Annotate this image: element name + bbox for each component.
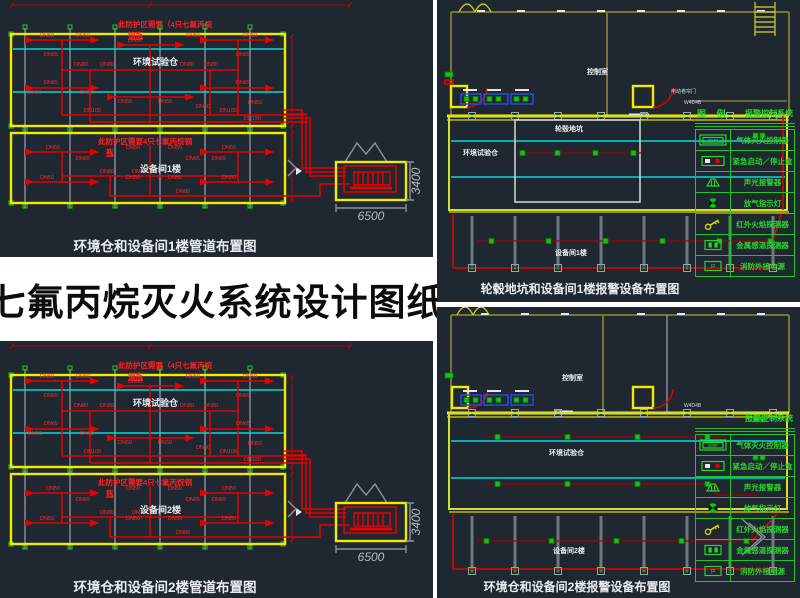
alarm-legend: 图 例 报警控制系统 气体灭火控制器 [695, 103, 795, 277]
legend-row-label: 红外火焰探测器 [731, 214, 794, 234]
stairs [755, 2, 775, 36]
legend-icon-cell [696, 235, 731, 255]
legend-row-icon [698, 216, 728, 232]
legend-row-icon [698, 237, 728, 253]
legend-row: 消防外接电源 [696, 561, 794, 581]
control-room-label: 控制室 [562, 373, 583, 382]
sheet-title: 七氟丙烷灭火系统设计图纸 [0, 272, 445, 326]
legend-divider [695, 123, 795, 127]
legend-icon-cell [696, 193, 731, 213]
legend-row: 声光报警器 [696, 477, 794, 498]
legend-icon-cell [696, 540, 731, 560]
door-frames [445, 72, 673, 107]
panel-alarm-plan-floor2: 控制室 [437, 307, 800, 598]
legend-title-row: 图 例 报警控制系统 [695, 103, 795, 123]
equipment-room-label: 设备间2楼 [140, 504, 181, 515]
environment-chamber-label: 环境试验仓 [463, 148, 499, 157]
legend-icon-cell [696, 130, 731, 150]
legend-row-label: 放气指示灯 [731, 193, 794, 213]
legend-row-label: 红外火焰探测器 [731, 519, 794, 539]
legend-row: 气体灭火控制器 [696, 130, 794, 151]
panel-caption: 环境仓和设备间2楼报警设备布置图 [484, 579, 671, 594]
legend-icon-cell [696, 151, 731, 171]
legend-row: 紧急启动／停止盒 [696, 151, 794, 172]
cad-drawing-sheet: GMP [0, 0, 800, 598]
panel-caption: 轮毂地坑和设备间1楼报警设备布置图 [481, 281, 680, 296]
legend-title-right: 报警控制系统 [745, 413, 793, 424]
legend-title-right: 报警控制系统 [745, 108, 793, 119]
legend-row-icon [698, 521, 728, 537]
legend-row-label: 金属感温探测器 [731, 235, 794, 255]
legend-row: 声光报警器 [696, 172, 794, 193]
legend-icon-cell [696, 256, 731, 276]
legend-row-label: 气体灭火控制器 [731, 130, 794, 150]
legend-icon-cell [696, 519, 731, 539]
legend-row-icon [698, 195, 728, 211]
legend-icon-cell [696, 435, 731, 455]
legend-row-icon [698, 174, 728, 190]
legend-row-label: 声光报警器 [731, 172, 794, 192]
legend-icon-cell [696, 498, 731, 518]
control-room-walls [451, 4, 789, 116]
equipment-room-label: 设备间1楼 [140, 163, 181, 174]
legend-icon-cell [696, 456, 731, 476]
legend-row-label: 紧急启动／停止盒 [731, 456, 794, 476]
legend-icon-cell [696, 561, 731, 581]
legend-row: 消防外接电源 [696, 256, 794, 276]
alarm-legend: 报警控制系统 气体灭火控制器 [695, 408, 795, 582]
legend-row: 气体灭火控制器 [696, 435, 794, 456]
legend-icon-cell [696, 214, 731, 234]
panel-alarm-plan-floor1: 控制室 [437, 0, 800, 302]
legend-row-label: 紧急启动／停止盒 [731, 151, 794, 171]
legend-table: 气体灭火控制器 紧急启动／停止盒 声光报警器 [695, 129, 795, 277]
legend-table: 气体灭火控制器 紧急启动／停止盒 声光报警器 [695, 434, 795, 582]
legend-row: 红外火焰探测器 [696, 519, 794, 540]
legend-row-label: 金属感温探测器 [731, 540, 794, 560]
legend-row-label: 消防外接电源 [731, 256, 794, 276]
legend-row: 金属感温探测器 [696, 235, 794, 256]
legend-icon-cell [696, 172, 731, 192]
legend-title-left: 图 例 [697, 107, 730, 120]
legend-row-icon [698, 500, 728, 516]
legend-row-icon [698, 458, 728, 474]
pipe-plan-floor1-svg: 设备间1楼 环境仓和设备间1楼管道布置图 [0, 0, 433, 257]
door-frames [445, 373, 673, 408]
equipment-room-label: 设备间2楼 [553, 546, 585, 555]
legend-row-icon [698, 258, 728, 274]
legend-row-icon [698, 132, 728, 148]
legend-row: 紧急启动／停止盒 [696, 456, 794, 477]
legend-row-icon [698, 153, 728, 169]
alarm-cabinet-row [461, 90, 533, 104]
panel-pipe-plan-floor2: 设备间2楼 环境仓和设备间2楼管道布置图 [0, 341, 433, 598]
sheet-title-band: 七氟丙烷灭火系统设计图纸 [0, 257, 433, 341]
legend-row-label: 声光报警器 [731, 477, 794, 497]
legend-row: 红外火焰探测器 [696, 214, 794, 235]
double-door-arc [459, 4, 491, 12]
legend-row-label: 放气指示灯 [731, 498, 794, 518]
legend-row: 放气指示灯 [696, 193, 794, 214]
pipe-plan-floor2-svg: 设备间2楼 环境仓和设备间2楼管道布置图 [0, 341, 433, 598]
legend-row: 放气指示灯 [696, 498, 794, 519]
panel-caption: 环境仓和设备间1楼管道布置图 [73, 238, 256, 254]
legend-row-label: 消防外接电源 [731, 561, 794, 581]
legend-row-icon [698, 563, 728, 579]
legend-row: 金属感温探测器 [696, 540, 794, 561]
control-room-label: 控制室 [587, 67, 608, 76]
legend-row-icon [698, 542, 728, 558]
panel-caption: 环境仓和设备间2楼管道布置图 [73, 579, 256, 595]
legend-title-row: 报警控制系统 [695, 408, 795, 428]
legend-row-label: 气体灭火控制器 [731, 435, 794, 455]
equipment-room-label: 设备间1楼 [555, 248, 587, 257]
legend-divider [695, 428, 795, 432]
alarm-cabinet-row [461, 391, 533, 405]
rolling-door-note: 电动卷帘门 [671, 88, 696, 95]
environment-chamber-label: 环境试验仓 [549, 448, 585, 457]
legend-row-icon [698, 479, 728, 495]
legend-row-icon [698, 437, 728, 453]
wheel-pit-label: 轮毂地坑 [555, 124, 583, 133]
panel-pipe-plan-floor1: 设备间1楼 环境仓和设备间1楼管道布置图 [0, 0, 433, 257]
control-room-walls [451, 307, 789, 413]
legend-icon-cell [696, 477, 731, 497]
